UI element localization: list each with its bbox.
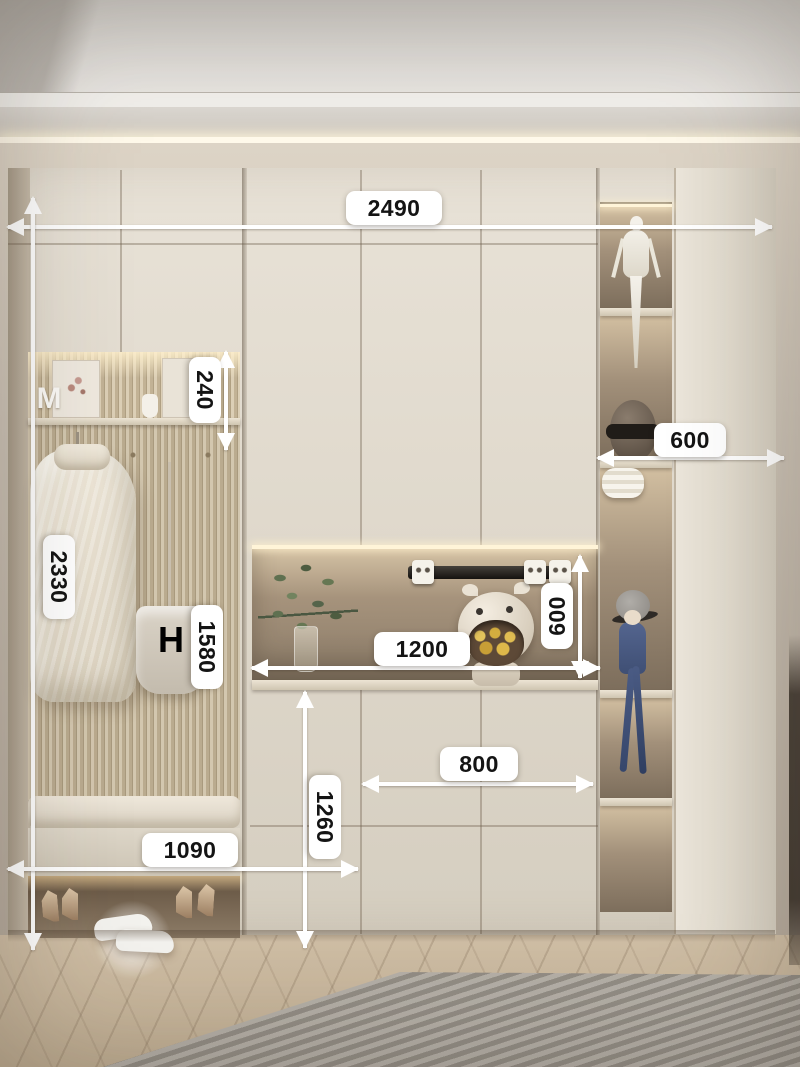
arrowhead-left (361, 775, 379, 793)
dim-depth-label: 600 (654, 423, 726, 457)
dimension-line-bench-width (8, 867, 358, 871)
ceiling-corner-shadow (0, 0, 120, 92)
arrowhead-left (250, 659, 268, 677)
dim-niche-width-label: 1200 (374, 632, 470, 666)
door-seam (360, 690, 362, 934)
dim-base-height-label: 1260 (309, 775, 341, 859)
display-shelf (600, 798, 672, 806)
dim-top-niche-label: 240 (189, 357, 221, 423)
door-seam-horizontal (8, 243, 598, 245)
unit-divider (596, 168, 600, 935)
doll-face (624, 610, 641, 625)
dimension-line-niche-width (252, 666, 600, 670)
arrowhead-down (24, 933, 42, 951)
arrowhead-right (341, 860, 359, 878)
dimension-line-niche-height (578, 556, 582, 678)
bench-cushion (28, 796, 240, 828)
dim-overall-height-label: 2330 (43, 535, 75, 619)
dimension-line-base-height (303, 692, 307, 948)
middle-niche-led (252, 545, 598, 549)
dim-bench-width-label: 1090 (142, 833, 238, 867)
power-outlet (549, 560, 571, 584)
dim-overall-width-label: 2490 (346, 191, 442, 225)
arrowhead-left (6, 860, 24, 878)
dim-niche-height-label: 600 (541, 583, 573, 649)
cornice-lower-band (0, 107, 800, 137)
entryway-cabinet-scene: M H (0, 0, 800, 1067)
small-white-vase (142, 394, 158, 418)
arrowhead-up (24, 196, 42, 214)
arrowhead-left (596, 449, 614, 467)
middle-niche-counter-edge (252, 680, 598, 690)
arrowhead-up (296, 690, 314, 708)
arrowhead-right (755, 218, 773, 236)
ceiling (0, 0, 800, 92)
plinth-shadow (8, 930, 775, 942)
cow-horn-left (462, 584, 478, 596)
sculpture-torso (623, 230, 649, 278)
coat-collar (54, 444, 110, 470)
arrowhead-down (296, 931, 314, 949)
door-seam (120, 170, 122, 352)
cow-bowl-gold-balls (468, 620, 524, 666)
dimension-line-overall-height (31, 198, 35, 950)
power-outlet (412, 560, 434, 584)
arrowhead-up (571, 554, 589, 572)
unit-divider (242, 168, 247, 935)
arrowhead-right (576, 775, 594, 793)
right-wall-dark-edge (789, 635, 800, 965)
arrowhead-left (6, 218, 24, 236)
door-seam (480, 690, 482, 934)
dimension-line-overall-width (8, 225, 772, 229)
handbag-strap (168, 462, 171, 610)
arrowhead-down (571, 661, 589, 679)
arrowhead-right (767, 449, 785, 467)
decor-letter: M (34, 382, 64, 416)
power-outlet (524, 560, 546, 584)
cow-eye-right (506, 606, 513, 613)
dim-shoe-cabinet-label: 800 (440, 747, 518, 781)
display-led (600, 204, 672, 207)
cow-eye-left (476, 608, 483, 615)
arrowhead-down (217, 433, 235, 451)
cornice-upper-band (0, 92, 800, 108)
dark-vase-band (606, 424, 660, 439)
dimension-line-shoe-cabinet (363, 782, 593, 786)
display-compartment (600, 806, 672, 912)
cabinet-left-side-panel (8, 168, 30, 935)
right-tall-door (674, 168, 776, 934)
dim-hanging-height-label: 1580 (191, 605, 223, 689)
rolled-towel (602, 468, 644, 498)
